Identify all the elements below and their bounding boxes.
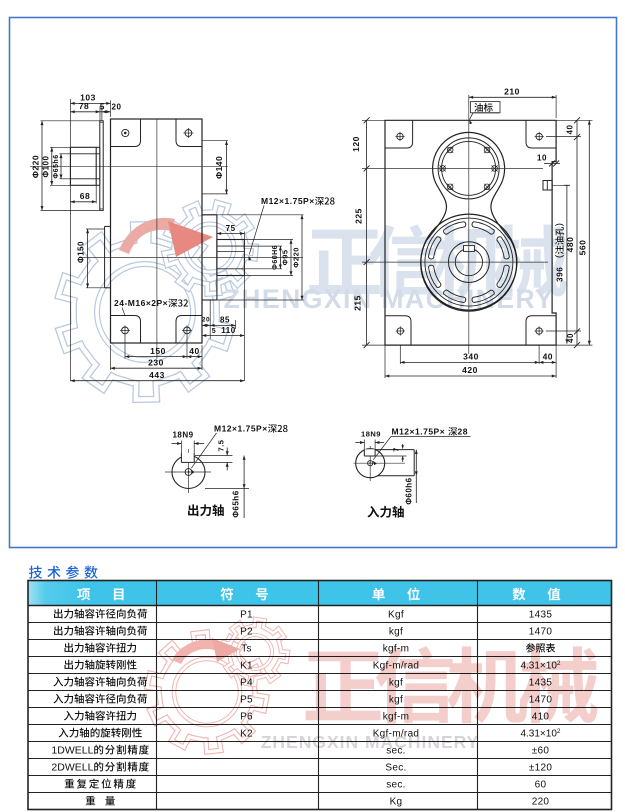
svg-text:78: 78 [79, 101, 89, 111]
svg-text:Φ65h6: Φ65h6 [53, 154, 60, 178]
svg-text:4.31×102: 4.31×102 [520, 728, 560, 740]
svg-text:Sec.: Sec. [385, 763, 406, 774]
svg-text:28: 28 [458, 427, 468, 437]
svg-text:396: 396 [555, 267, 565, 282]
svg-text:110: 110 [221, 326, 235, 335]
svg-text:230: 230 [148, 357, 164, 367]
svg-text:40: 40 [189, 346, 199, 356]
svg-text:ZHENGXIN MACHINERY: ZHENGXIN MACHINERY [224, 284, 555, 314]
svg-text:Φ65h6: Φ65h6 [231, 490, 240, 517]
svg-text:68: 68 [80, 191, 90, 201]
svg-text:10: 10 [537, 154, 547, 163]
svg-text:M12×1.75P×: M12×1.75P× [214, 424, 268, 434]
svg-text:Φ140: Φ140 [214, 156, 224, 179]
svg-text:sec.: sec. [386, 780, 406, 791]
svg-text:Φ60H6: Φ60H6 [272, 245, 279, 270]
svg-text:M12×1.75P×: M12×1.75P× [392, 427, 446, 437]
svg-text:M12×1.75P×: M12×1.75P× [261, 196, 315, 206]
svg-text:40: 40 [566, 125, 575, 135]
svg-text:225: 225 [354, 208, 364, 224]
svg-text:ZHENGXIN MACHINERY: ZHENGXIN MACHINERY [261, 732, 480, 752]
svg-text:40: 40 [543, 352, 553, 362]
svg-text:220: 220 [532, 797, 550, 808]
svg-text:±120: ±120 [529, 763, 553, 774]
svg-text:18N9: 18N9 [172, 431, 193, 440]
svg-text:Φ220: Φ220 [31, 155, 41, 178]
svg-text:P1: P1 [240, 610, 253, 621]
svg-text:Φ95: Φ95 [281, 249, 290, 265]
svg-text:120: 120 [351, 136, 361, 152]
svg-text:7.5: 7.5 [216, 440, 225, 452]
svg-text:1DWELL: 1DWELL [51, 745, 93, 757]
svg-text:±60: ±60 [532, 746, 550, 757]
svg-text:85: 85 [220, 315, 230, 324]
svg-text:210: 210 [504, 87, 520, 97]
svg-text:75: 75 [226, 224, 236, 233]
svg-text:560: 560 [577, 240, 587, 256]
svg-text:Kg: Kg [390, 797, 403, 808]
svg-text:24-M16×2P×: 24-M16×2P× [114, 298, 168, 308]
svg-text:60: 60 [535, 780, 547, 791]
svg-text:5: 5 [100, 102, 105, 111]
svg-text:215: 215 [353, 295, 363, 311]
svg-text:20: 20 [202, 316, 210, 323]
svg-text:420: 420 [462, 365, 478, 375]
svg-text:7: 7 [392, 447, 401, 452]
svg-text:18N9: 18N9 [361, 430, 381, 439]
svg-text:Φ220: Φ220 [291, 247, 300, 268]
svg-text:Kgf: Kgf [388, 610, 404, 621]
svg-text:Φ60h6: Φ60h6 [405, 477, 414, 504]
svg-text:20: 20 [112, 102, 122, 111]
svg-text:Φ100: Φ100 [41, 155, 50, 177]
svg-text:443: 443 [149, 370, 165, 380]
svg-text:150: 150 [150, 346, 166, 356]
svg-text:kgf: kgf [389, 627, 403, 638]
svg-text:Φ150: Φ150 [76, 241, 85, 263]
svg-text:340: 340 [463, 352, 479, 362]
svg-text:1470: 1470 [529, 627, 553, 638]
svg-text:1435: 1435 [529, 610, 553, 621]
svg-text:5: 5 [212, 328, 216, 335]
svg-text:2DWELL: 2DWELL [51, 762, 93, 774]
